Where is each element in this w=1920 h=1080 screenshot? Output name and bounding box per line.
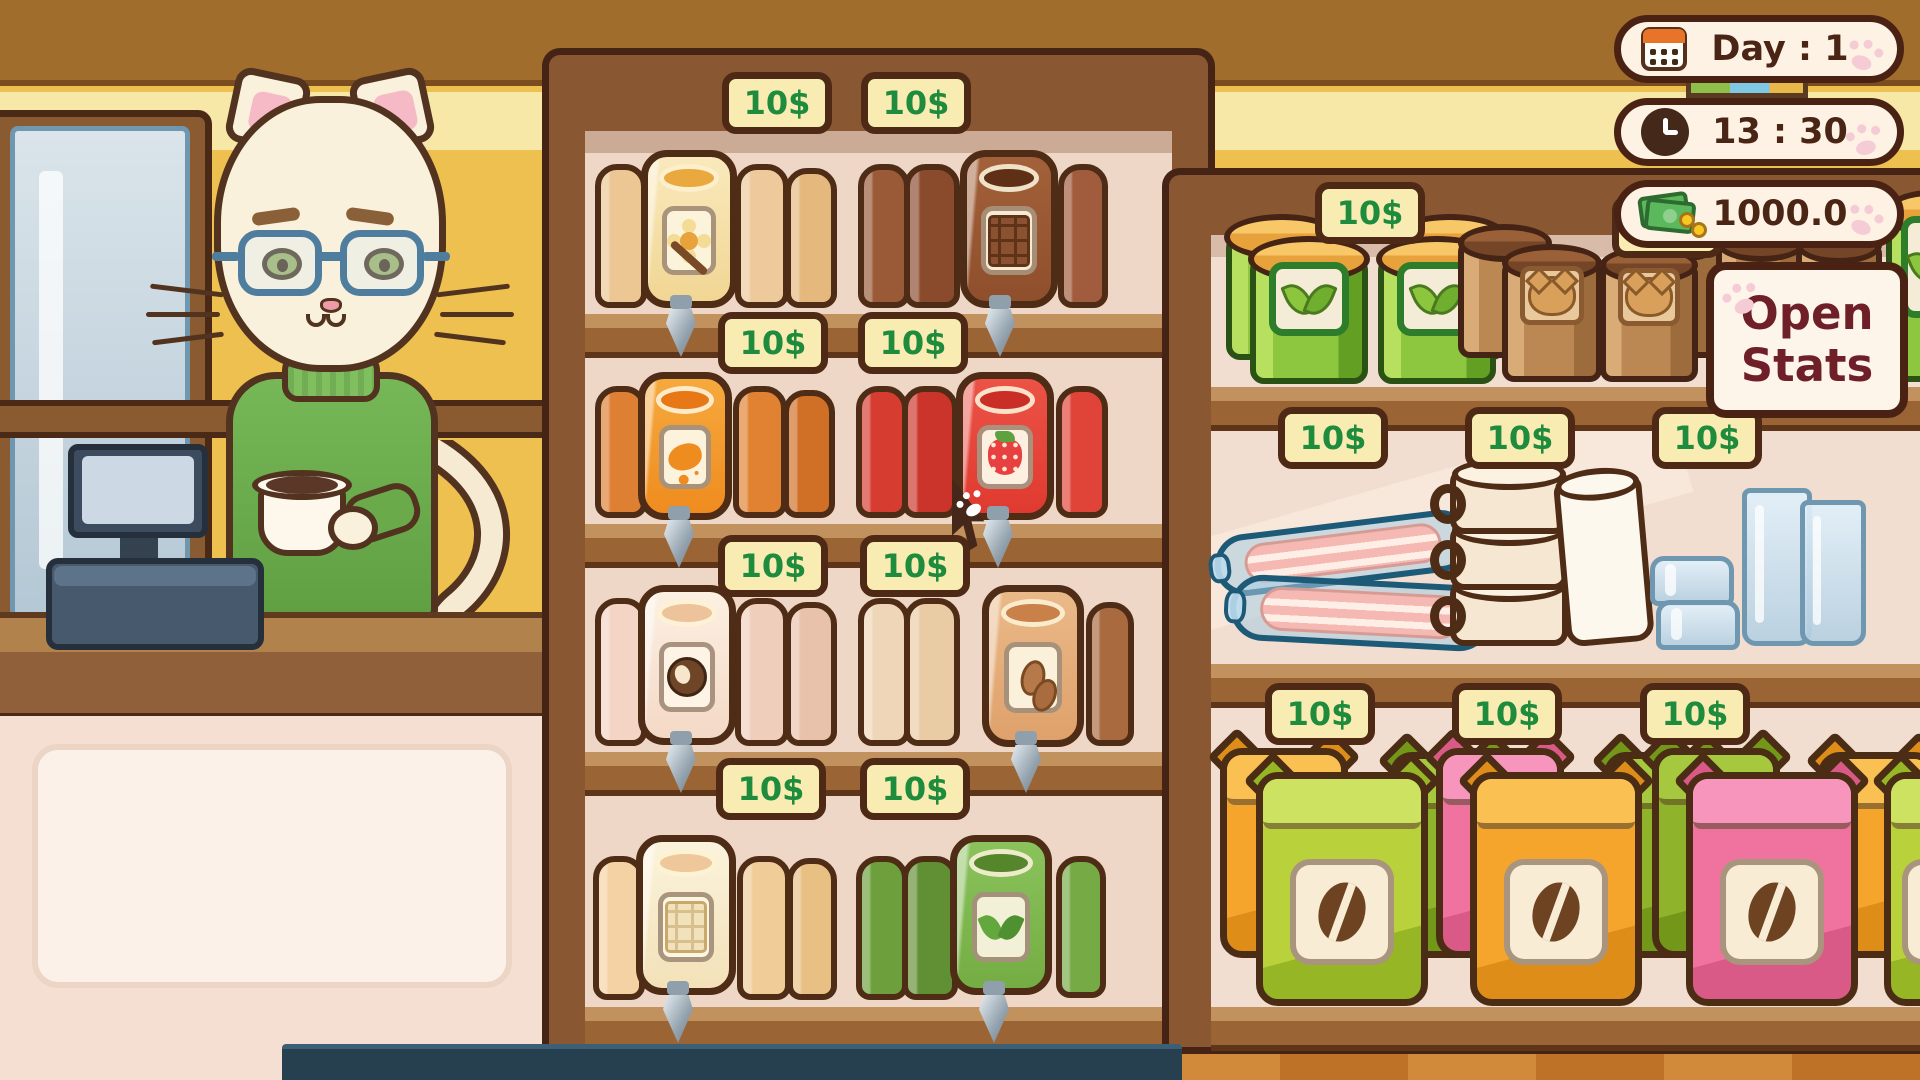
white-chocolate-syrup-dispenser-back[interactable] (787, 858, 837, 1000)
almond-syrup-dispenser[interactable] (982, 585, 1084, 747)
stacked-glass[interactable] (1656, 600, 1740, 650)
bag-top-fold (1477, 779, 1635, 829)
jar-label (1269, 262, 1350, 336)
cat-whisker (146, 312, 220, 317)
cat-whisker (440, 312, 514, 317)
tap-cap (1015, 731, 1037, 745)
dispenser-tap[interactable] (663, 731, 699, 797)
counter-front (0, 652, 545, 718)
tap-cap (670, 731, 692, 745)
dispenser-label (972, 892, 1030, 962)
dispenser-label (659, 642, 714, 712)
strawberry-syrup-dispenser-back[interactable] (902, 386, 958, 518)
bag-label (1504, 859, 1608, 965)
wrap-end (1207, 552, 1232, 584)
strawberry-syrup-dispenser-back[interactable] (1056, 386, 1108, 518)
stats-button-label: Open (1740, 288, 1873, 340)
bean-icon (1312, 877, 1373, 947)
glasses-bridge (316, 252, 344, 261)
coffee-bag-lime[interactable] (1884, 772, 1920, 1006)
stacked-cup[interactable] (1450, 468, 1568, 534)
price-tag: 10$ (1465, 407, 1575, 469)
almond-syrup-dispenser-back[interactable] (858, 598, 910, 746)
bag-label (1902, 859, 1920, 965)
white-chocolate-syrup-dispenser-back[interactable] (737, 856, 791, 1000)
clock-display: 13 : 30 (1614, 98, 1904, 166)
dispenser-opening (975, 386, 1035, 414)
tap-spout (666, 745, 696, 793)
money-icon (1639, 190, 1691, 238)
clock-icon (1639, 108, 1691, 156)
tin-label (1520, 266, 1583, 325)
caramel-syrup-dispenser-back[interactable] (733, 386, 787, 518)
coconut-syrup-dispenser[interactable] (638, 585, 736, 745)
caramel-syrup-dispenser-back[interactable] (783, 390, 835, 518)
white-chocolate-syrup-dispenser[interactable] (636, 835, 736, 995)
stacked-glass[interactable] (1650, 556, 1734, 606)
dispenser-opening (657, 599, 717, 627)
price-tag: 10$ (716, 758, 826, 820)
matcha-syrup-dispenser[interactable] (950, 835, 1052, 995)
caramel-syrup-dispenser[interactable] (638, 372, 732, 520)
coconut-syrup-dispenser-back[interactable] (735, 598, 789, 746)
cat-paw (328, 506, 378, 550)
tap-spout (664, 520, 694, 568)
dispenser-opening (659, 164, 718, 192)
floor-mat (282, 1044, 1182, 1080)
bean-icon (1526, 877, 1587, 947)
vanilla-syrup-dispenser-back[interactable] (595, 164, 647, 308)
almond-icon (1017, 657, 1049, 698)
dispenser-tap[interactable] (663, 295, 699, 361)
cursor-arrow (952, 478, 1006, 554)
coffee-tin[interactable] (1502, 260, 1602, 382)
coffee-surface (266, 476, 338, 494)
dispenser-tap[interactable] (982, 295, 1018, 361)
bag-label (1290, 859, 1394, 965)
cat-whisker (434, 332, 506, 346)
counter-panel (32, 744, 512, 988)
tin-label (1618, 268, 1680, 326)
leaf-icon (1908, 244, 1920, 290)
chocolate-syrup-dispenser[interactable] (960, 150, 1058, 308)
paw-decoration (1844, 121, 1884, 158)
coffee-bag-pink[interactable] (1686, 772, 1858, 1006)
tap-cap (989, 295, 1011, 309)
almond-syrup-dispenser-back[interactable] (1086, 602, 1134, 746)
dispenser-tap[interactable] (1008, 731, 1044, 797)
dispenser-label (1004, 642, 1062, 713)
dispenser-opening (1001, 599, 1064, 627)
green-tea-jar[interactable] (1250, 256, 1368, 384)
price-tag: 10$ (718, 312, 828, 374)
chocolate-syrup-dispenser-back[interactable] (1058, 164, 1108, 308)
matcha-syrup-dispenser-back[interactable] (856, 856, 908, 1000)
bag-top-fold (1263, 779, 1421, 829)
glasses-arm-right (422, 252, 450, 261)
cup-handle (1430, 540, 1466, 580)
price-tag: 10$ (1315, 182, 1425, 244)
caramel-icon (666, 440, 705, 473)
tap-spout (979, 995, 1009, 1043)
glasses-arm-left (212, 252, 240, 261)
chocolate-syrup-dispenser-back[interactable] (904, 164, 960, 308)
dispenser-label (659, 425, 712, 489)
day-counter: Day : 1 (1614, 15, 1904, 83)
matcha-syrup-dispenser-back[interactable] (1056, 856, 1106, 998)
dispenser-label (662, 206, 716, 275)
tap-spout (1011, 745, 1041, 793)
coconut-icon (667, 657, 707, 697)
wrap-end (1223, 589, 1247, 624)
cup-handle (1430, 596, 1466, 636)
glasses-lens-right (340, 230, 424, 296)
register-keypad (54, 566, 256, 586)
shelf-board (1211, 1007, 1920, 1051)
cat-nose (320, 298, 342, 313)
catface-icon (1625, 277, 1673, 317)
coconut-syrup-dispenser-back[interactable] (785, 602, 837, 746)
leaf-icon (1283, 276, 1335, 322)
coffee-bag-orange[interactable] (1470, 772, 1642, 1006)
dispenser-label (981, 206, 1036, 275)
tap-cap (667, 981, 689, 995)
vanilla-syrup-dispenser[interactable] (641, 150, 737, 308)
price-tag: 10$ (1640, 683, 1750, 745)
chocolate-icon (988, 215, 1030, 267)
stats-button-label: Stats (1741, 340, 1874, 392)
price-tag: 10$ (722, 72, 832, 134)
dispenser-tap[interactable] (660, 981, 696, 1047)
price-tag: 10$ (718, 535, 828, 597)
glasses-lens-left (238, 230, 322, 296)
paw-cursor (952, 478, 1006, 554)
dispenser-opening (969, 849, 1032, 877)
register-screen (82, 456, 194, 524)
almond-syrup-dispenser-back[interactable] (904, 598, 960, 746)
coffee-bag-lime[interactable] (1256, 772, 1428, 1006)
chocolate-syrup-dispenser-back[interactable] (858, 164, 910, 308)
whitechoc-icon (665, 901, 707, 953)
tap-cap (668, 506, 690, 520)
calendar-icon (1639, 25, 1691, 73)
price-tag: 10$ (861, 72, 971, 134)
game-scene: 10$10$10$10$10$10$10$10$10$10$10$10$10$1… (0, 0, 1920, 1080)
dispenser-opening (979, 164, 1039, 192)
tap-spout (666, 309, 696, 357)
matcha-icon (980, 909, 1022, 945)
tap-cap (670, 295, 692, 309)
tap-spout (985, 309, 1015, 357)
money-counter: 1000.0 (1614, 180, 1904, 248)
price-tag: 10$ (1265, 683, 1375, 745)
dispenser-tap[interactable] (976, 981, 1012, 1047)
open-stats-button[interactable]: Open Stats (1706, 262, 1908, 418)
vanilla-syrup-dispenser-back[interactable] (735, 164, 789, 308)
dispenser-label (658, 892, 715, 962)
price-tag: 10$ (858, 312, 968, 374)
white-mug[interactable] (1553, 474, 1655, 647)
catface-icon (1528, 276, 1576, 316)
price-tag: 10$ (860, 758, 970, 820)
leaf-icon (1411, 276, 1463, 322)
dispenser-tap[interactable] (661, 506, 697, 572)
tap-cap (983, 981, 1005, 995)
coffee-tin[interactable] (1600, 262, 1698, 382)
cat-whisker (436, 284, 510, 298)
dispenser-opening (655, 849, 717, 877)
vanilla-syrup-dispenser-back[interactable] (785, 168, 837, 308)
vanilla-icon (680, 232, 698, 250)
tap-spout (663, 995, 693, 1043)
cup-handle (1430, 484, 1466, 524)
bag-top-fold (1693, 779, 1851, 829)
glass-cup[interactable] (1800, 500, 1866, 646)
bag-label (1720, 859, 1824, 965)
strawberry-syrup-dispenser-back[interactable] (856, 386, 908, 518)
strawberry-icon (988, 439, 1022, 475)
price-tag: 10$ (1452, 683, 1562, 745)
price-tag: 10$ (1278, 407, 1388, 469)
bag-top-fold (1891, 779, 1920, 829)
dispenser-opening (656, 386, 714, 414)
bean-icon (1742, 877, 1803, 947)
